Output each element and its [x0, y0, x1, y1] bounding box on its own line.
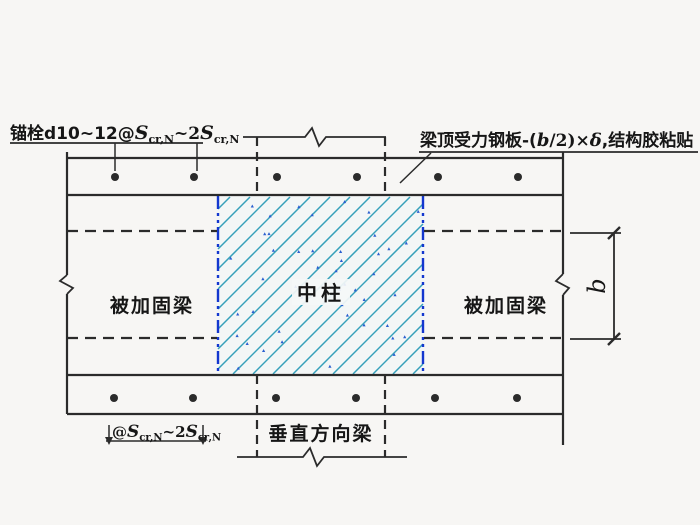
anchor-bolt: [434, 173, 442, 181]
anchor-bolt: [190, 173, 198, 181]
top-plate-label: 梁顶受力钢板-(b/2)×δ,结构胶粘贴: [419, 130, 693, 151]
center-column-label: 中柱: [297, 281, 345, 305]
plate-label-b: b: [537, 130, 550, 151]
dim-b-text: b: [583, 278, 611, 293]
plate-label-p2: /2)×: [549, 131, 589, 151]
strengthened-beam-label-left: 被加固梁: [110, 294, 194, 317]
plate-label-delta: δ: [589, 130, 602, 151]
anchor-bolt-label: 锚栓d10~12@Scr,N~2Scr,N: [10, 122, 239, 146]
plate-label-p1: 梁顶受力钢板-(: [419, 130, 537, 151]
anchor-label-mid: ~2: [174, 124, 200, 144]
anchor-bolt: [273, 173, 281, 181]
beam-strengthening-plan-svg: 锚栓d10~12@Scr,N~2Scr,N 梁顶受力钢板-(b/2)×δ,结构胶…: [0, 0, 700, 525]
anchor-bolt: [513, 394, 521, 402]
spacing-label-mid: ~2: [163, 423, 186, 441]
anchor-bolt: [353, 173, 361, 181]
strengthened-beam-label-right: 被加固梁: [464, 294, 548, 317]
plate-label-p3: ,结构胶粘贴: [602, 130, 693, 151]
spacing-label-S1: S: [127, 422, 139, 442]
anchor-bolt: [352, 394, 360, 402]
anchor-label-prefix: 锚栓d10~12@: [10, 123, 135, 144]
anchor-bolt: [111, 173, 119, 181]
anchor-bolt: [514, 173, 522, 181]
anchor-bolt: [431, 394, 439, 402]
anchor-label-S2: S: [200, 122, 214, 144]
spacing-label-sub1: cr,N: [139, 433, 162, 444]
anchor-bolt: [110, 394, 118, 402]
spacing-label-S2: S: [186, 422, 198, 442]
anchor-label-S1: S: [135, 122, 149, 144]
anchor-bolt: [272, 394, 280, 402]
anchor-label-sub1: cr,N: [148, 133, 174, 146]
spacing-label-sub2: cr,N: [198, 433, 221, 444]
anchor-label-sub2: cr,N: [214, 133, 240, 146]
perpendicular-beam-label: 垂直方向梁: [268, 422, 373, 445]
drawing-sheet: 锚栓d10~12@Scr,N~2Scr,N 梁顶受力钢板-(b/2)×δ,结构胶…: [0, 0, 700, 525]
spacing-label-prefix: @: [112, 423, 127, 441]
anchor-bolt: [189, 394, 197, 402]
